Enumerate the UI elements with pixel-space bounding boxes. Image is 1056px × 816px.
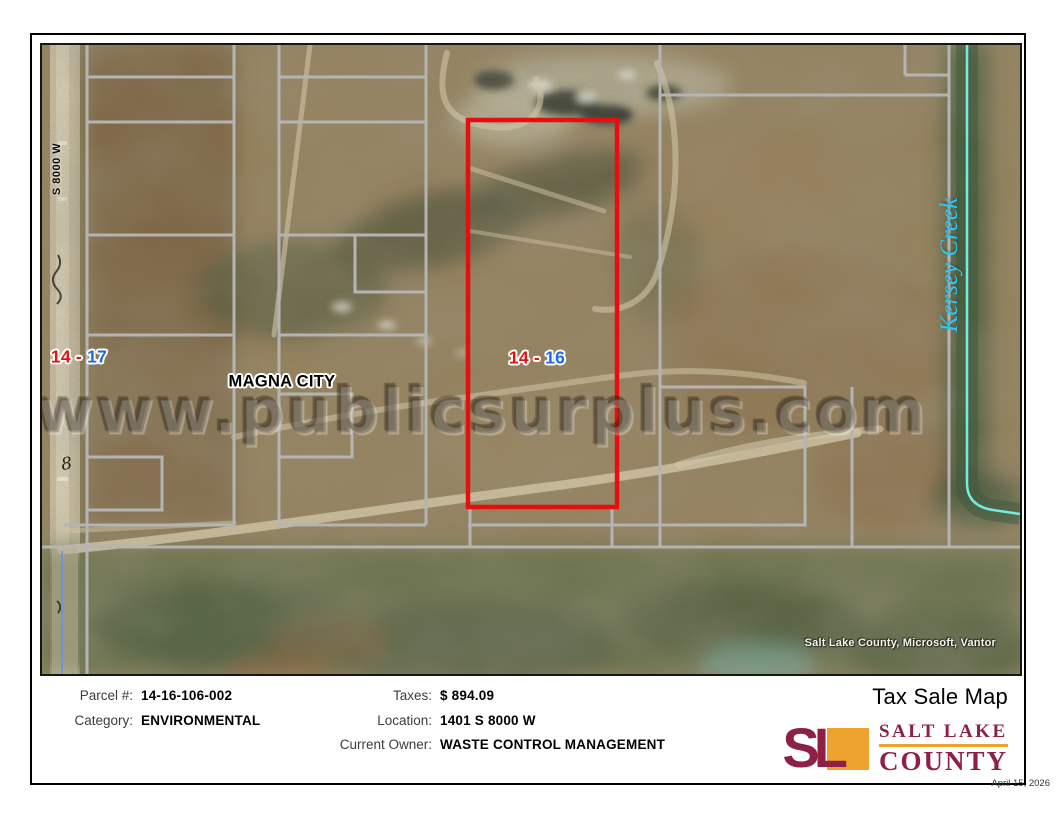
title-logo-block: Tax Sale Map SL SALT LAKE COUNTY xyxy=(782,685,1008,775)
logo-wordmark: SALT LAKE COUNTY xyxy=(879,721,1008,775)
tax-sale-map-image: 8 xyxy=(40,43,1022,676)
imagery-attribution: Salt Lake County, Microsoft, Vantor xyxy=(805,637,996,649)
current-owner-row: Current Owner: WASTE CONTROL MANAGEMENT xyxy=(320,737,665,752)
logo-sl-letters: SL xyxy=(782,726,842,770)
field-label: Category: xyxy=(65,713,133,728)
page-frame: 8 xyxy=(30,33,1026,785)
parcel-number-row: Parcel #: 14-16-106-002 xyxy=(65,688,260,703)
field-value: ENVIRONMENTAL xyxy=(141,713,260,728)
field-value: 14-16-106-002 xyxy=(141,688,232,703)
parcel-info-block: Parcel #: 14-16-106-002 Category: ENVIRO… xyxy=(65,688,260,737)
field-label: Current Owner: xyxy=(320,737,432,752)
salt-lake-county-logo: SL SALT LAKE COUNTY xyxy=(782,721,1008,775)
field-label: Parcel #: xyxy=(65,688,133,703)
page-title: Tax Sale Map xyxy=(782,685,1008,708)
location-row: Location: 1401 S 8000 W xyxy=(320,713,665,728)
logo-name-line1: SALT LAKE xyxy=(879,721,1008,747)
date-stamp: April 15, 2026 xyxy=(991,778,1050,789)
taxes-row: Taxes: $ 894.09 xyxy=(320,688,665,703)
logo-name-line2: COUNTY xyxy=(879,748,1008,775)
sale-info-block: Taxes: $ 894.09 Location: 1401 S 8000 W … xyxy=(320,688,665,762)
field-label: Taxes: xyxy=(320,688,432,703)
category-row: Category: ENVIRONMENTAL xyxy=(65,713,260,728)
logo-monogram-mark: SL xyxy=(782,726,869,770)
field-value: WASTE CONTROL MANAGEMENT xyxy=(440,737,665,752)
satellite-imagery: 8 xyxy=(42,45,1020,674)
field-value: 1401 S 8000 W xyxy=(440,713,536,728)
field-label: Location: xyxy=(320,713,432,728)
field-value: $ 894.09 xyxy=(440,688,494,703)
